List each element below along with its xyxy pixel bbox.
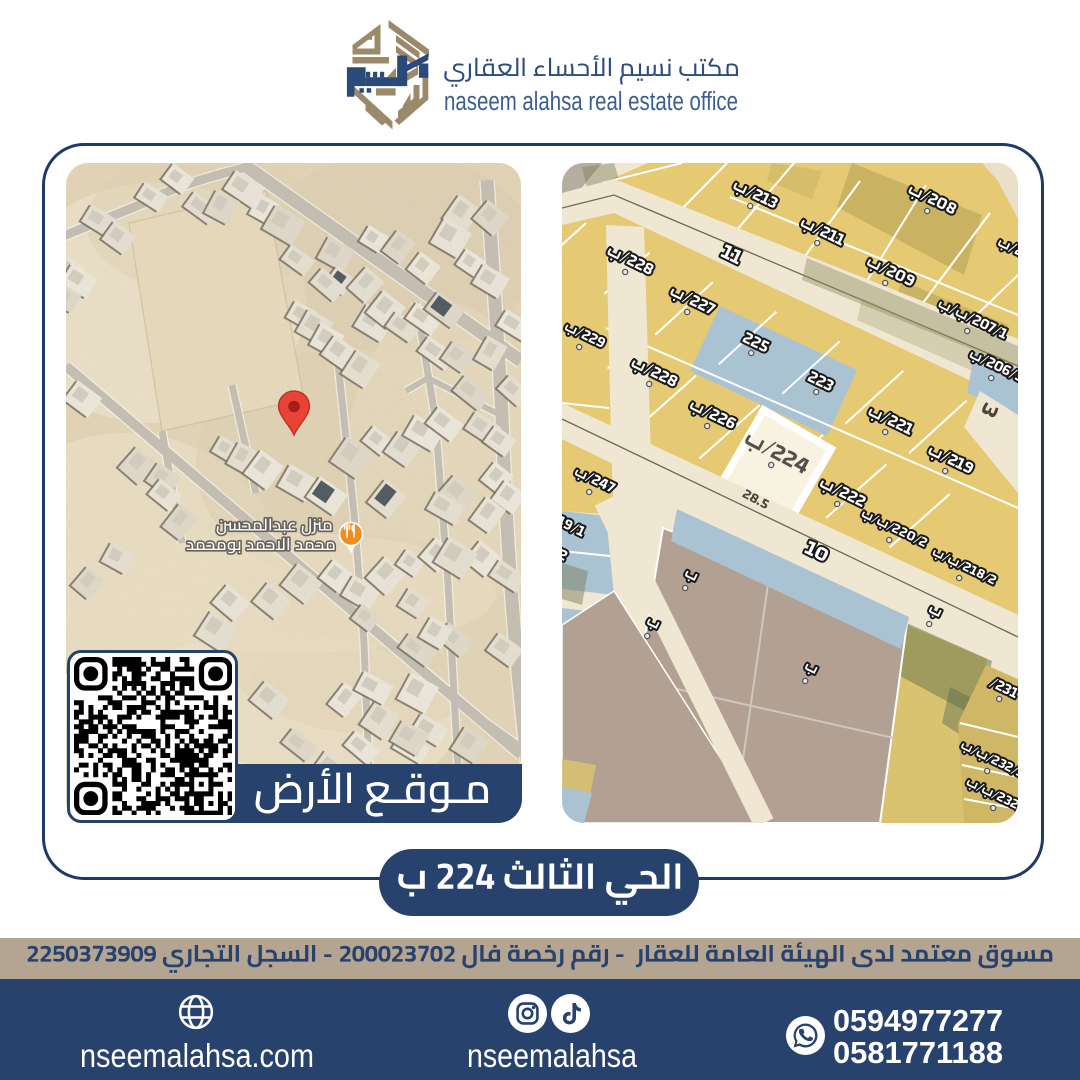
svg-text:0594977277: 0594977277 <box>833 1003 1003 1038</box>
svg-text:0581771188: 0581771188 <box>833 1035 1003 1070</box>
svg-text:nseemalahsa: nseemalahsa <box>467 1037 638 1074</box>
svg-text:naseem alahsa real estate offi: naseem alahsa real estate office <box>444 88 738 116</box>
svg-text:nseemalahsa.com: nseemalahsa.com <box>80 1037 314 1074</box>
